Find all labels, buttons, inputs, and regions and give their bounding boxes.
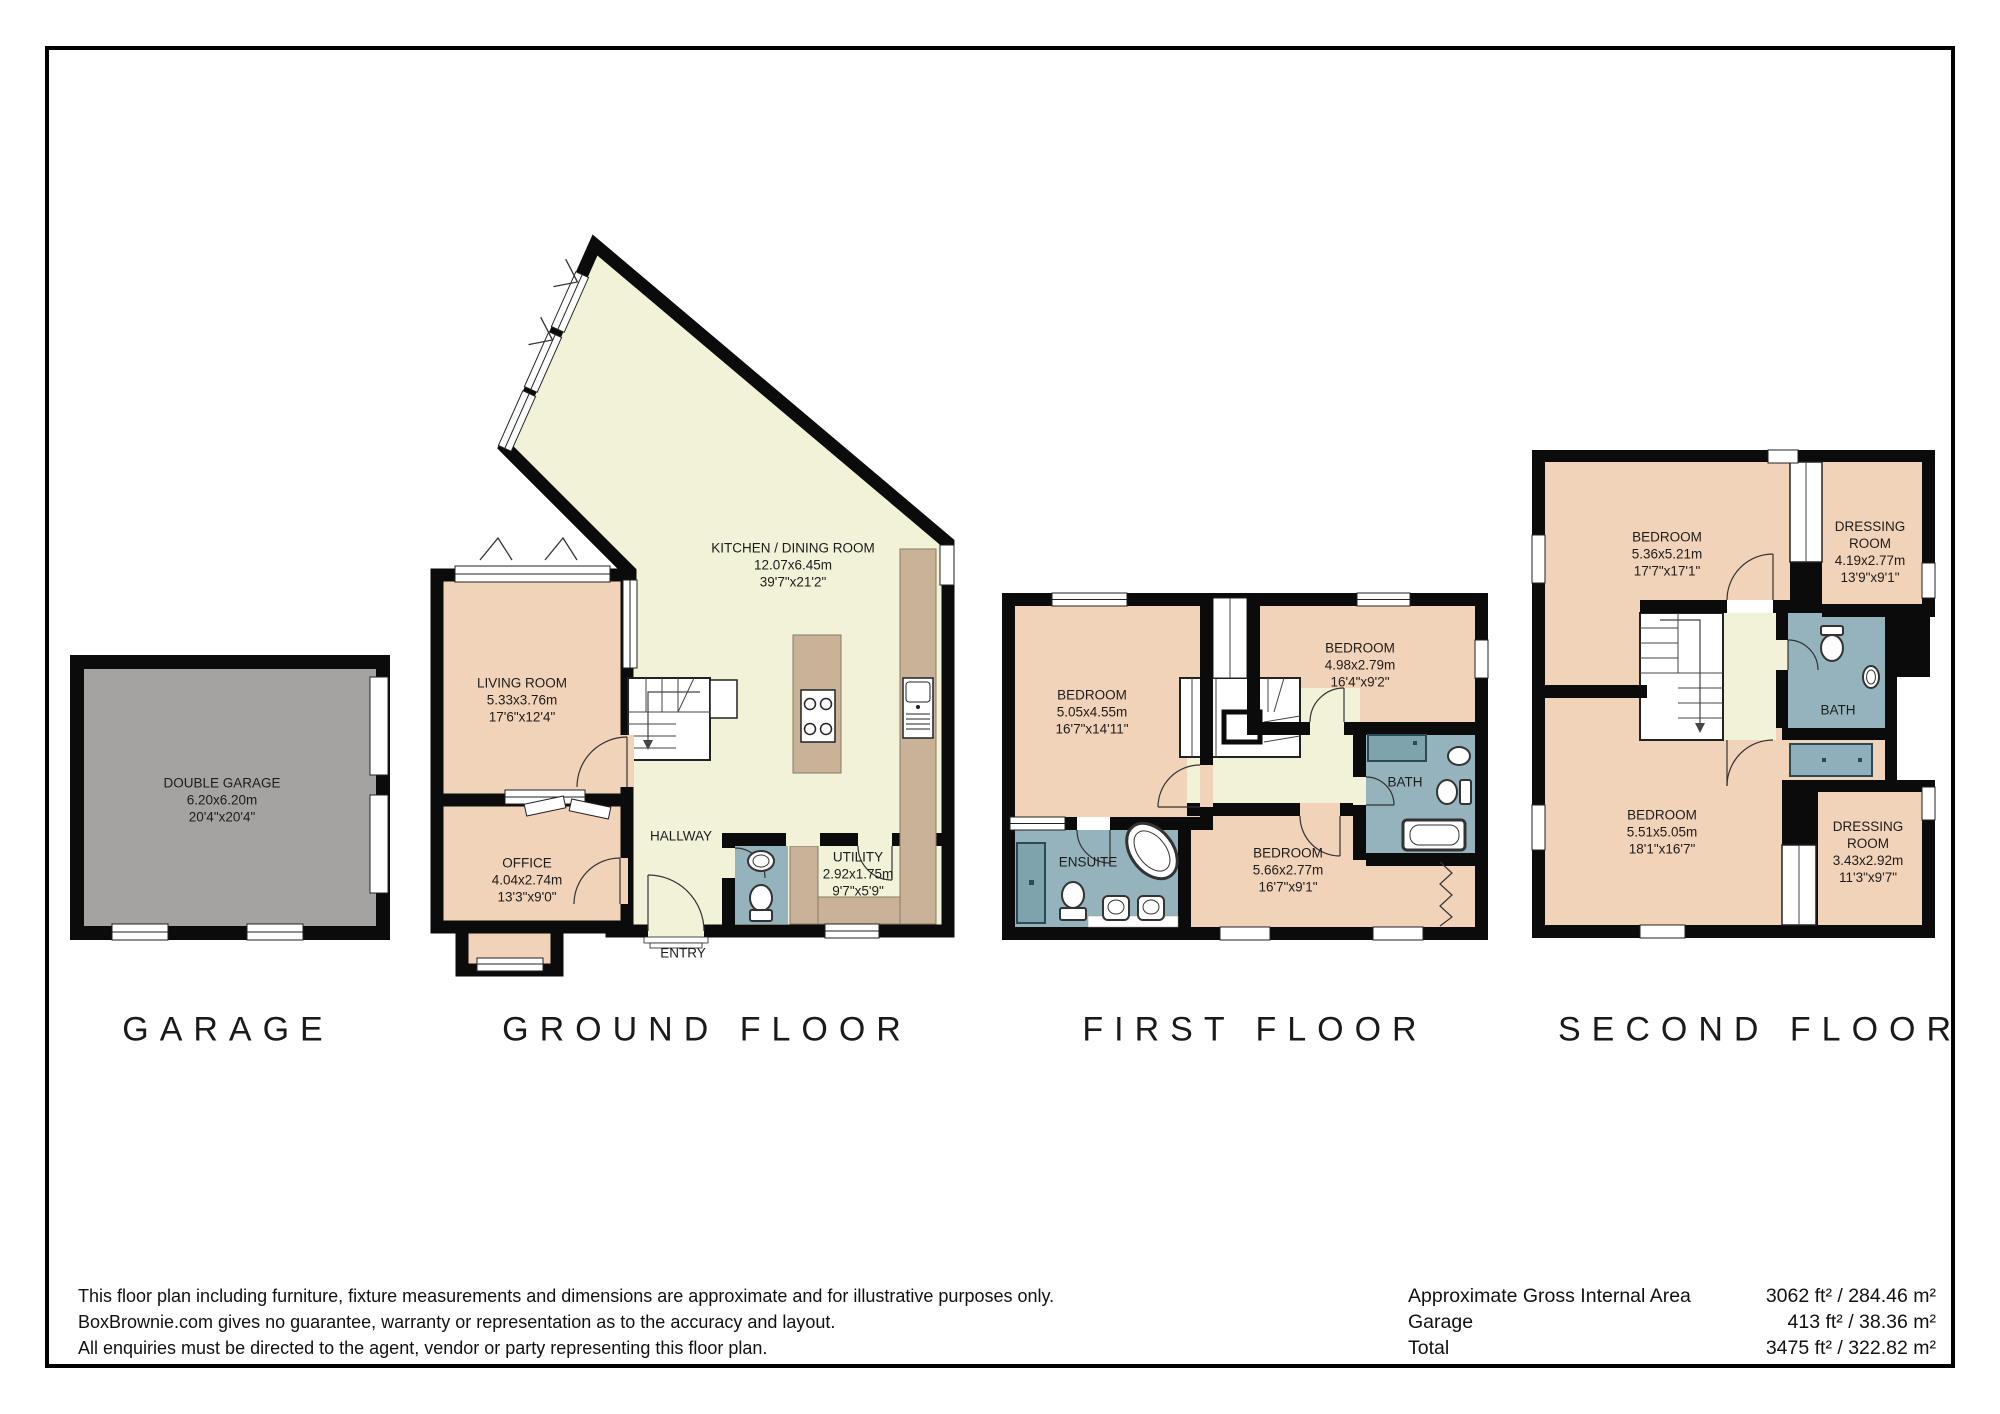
- room-label-double-garage: DOUBLE GARAGE 6.20x6.20m 20'4"x20'4": [163, 775, 280, 826]
- room-dims-metric: 2.92x1.75m: [823, 866, 894, 883]
- bathtub-icon: [1403, 820, 1465, 850]
- room-dims-imperial: 16'4"x9'2": [1325, 674, 1396, 691]
- area-row-gross: Approximate Gross Internal Area 3062 ft²…: [1408, 1283, 1936, 1309]
- room-name: BEDROOM: [1632, 529, 1703, 546]
- room-name: DOUBLE GARAGE: [163, 775, 280, 792]
- area-summary-table: Approximate Gross Internal Area 3062 ft²…: [1408, 1283, 1936, 1361]
- disclaimer-line-2: BoxBrownie.com gives no guarantee, warra…: [78, 1309, 1054, 1335]
- room-dims-imperial: 9'7"x5'9": [823, 883, 894, 900]
- room-dims-metric: 5.66x2.77m: [1253, 862, 1324, 879]
- room-name-2: ROOM: [1835, 535, 1906, 552]
- area-label: Total: [1408, 1335, 1449, 1361]
- room-dims-metric: 12.07x6.45m: [711, 557, 875, 574]
- room-label-living-room: LIVING ROOM 5.33x3.76m 17'6"x12'4": [477, 675, 567, 726]
- room-label-utility: UTILITY 2.92x1.75m 9'7"x5'9": [823, 849, 894, 900]
- room-name: KITCHEN / DINING ROOM: [711, 540, 875, 557]
- room-label-sf-bedroom-1: BEDROOM 5.36x5.21m 17'7"x17'1": [1632, 529, 1703, 580]
- disclaimer-line-3: All enquiries must be directed to the ag…: [78, 1335, 1054, 1361]
- room-name: BEDROOM: [1253, 845, 1324, 862]
- room-dims-imperial: 18'1"x16'7": [1627, 841, 1698, 858]
- room-name: ENSUITE: [1059, 854, 1118, 871]
- room-dims-imperial: 13'9"x9'1": [1835, 569, 1906, 586]
- disclaimer-text: This floor plan including furniture, fix…: [78, 1283, 1054, 1361]
- bathtub-icon: [1790, 744, 1872, 776]
- title-garage: GARAGE: [122, 1011, 333, 1050]
- title-ground-floor: GROUND FLOOR: [502, 1011, 912, 1050]
- room-name: BEDROOM: [1055, 687, 1128, 704]
- room-dims-imperial: 17'7"x17'1": [1632, 563, 1703, 580]
- room-dims-metric: 4.19x2.77m: [1835, 552, 1906, 569]
- room-dims-metric: 5.51x5.05m: [1627, 824, 1698, 841]
- room-label-sf-bedroom-2: BEDROOM 5.51x5.05m 18'1"x16'7": [1627, 807, 1698, 858]
- basin-icon: [1863, 666, 1879, 688]
- second-stairs: [1640, 613, 1723, 740]
- stove-icon: [801, 690, 835, 742]
- room-name-2: ROOM: [1833, 835, 1904, 852]
- basin-icon: [748, 851, 774, 871]
- basin-icon: [1448, 747, 1470, 765]
- room-name: HALLWAY: [650, 828, 712, 845]
- title-second-floor: SECOND FLOOR: [1558, 1011, 1962, 1050]
- first-floor-plan: [1002, 593, 1488, 940]
- room-dims-metric: 4.98x2.79m: [1325, 657, 1396, 674]
- toilet-icon: [750, 885, 772, 921]
- room-label-entry: ENTRY: [660, 945, 706, 962]
- room-name: OFFICE: [492, 855, 563, 872]
- toilet-icon: [1821, 626, 1843, 661]
- room-label-sf-dressing-2: DRESSING ROOM 3.43x2.92m 11'3"x9'7": [1833, 818, 1904, 886]
- floorplan-drawing: [0, 0, 2000, 1414]
- area-value: 3062 ft² / 284.46 m²: [1766, 1283, 1936, 1309]
- room-dims-metric: 5.33x3.76m: [477, 692, 567, 709]
- room-label-hallway: HALLWAY: [650, 828, 712, 845]
- sink-icon: [903, 678, 933, 738]
- vanity-counter: [1368, 735, 1426, 761]
- room-label-ff-bedroom-2: BEDROOM 4.98x2.79m 16'4"x9'2": [1325, 640, 1396, 691]
- kitchen-island: [793, 635, 841, 773]
- area-label: Garage: [1408, 1309, 1473, 1335]
- room-label-kitchen: KITCHEN / DINING ROOM 12.07x6.45m 39'7"x…: [711, 540, 875, 591]
- room-name: BATH: [1820, 702, 1855, 719]
- room-dims-metric: 3.43x2.92m: [1833, 852, 1904, 869]
- room-dims-metric: 4.04x2.74m: [492, 872, 563, 889]
- room-dims-metric: 6.20x6.20m: [163, 792, 280, 809]
- room-label-sf-bath: BATH: [1820, 702, 1855, 719]
- disclaimer-line-1: This floor plan including furniture, fix…: [78, 1283, 1054, 1309]
- title-first-floor: FIRST FLOOR: [1082, 1011, 1427, 1050]
- room-dims-imperial: 16'7"x14'11": [1055, 721, 1128, 738]
- area-row-total: Total 3475 ft² / 322.82 m²: [1408, 1335, 1936, 1361]
- area-label: Approximate Gross Internal Area: [1408, 1283, 1691, 1309]
- room-label-ensuite: ENSUITE: [1059, 854, 1118, 871]
- room-dims-metric: 5.05x4.55m: [1055, 704, 1128, 721]
- room-dims-imperial: 17'6"x12'4": [477, 709, 567, 726]
- kitchen-counter: [900, 549, 936, 924]
- room-name: BATH: [1387, 774, 1422, 791]
- room-dims-imperial: 13'3"x9'0": [492, 889, 563, 906]
- room-name: UTILITY: [823, 849, 894, 866]
- area-value: 413 ft² / 38.36 m²: [1788, 1309, 1937, 1335]
- room-name: BEDROOM: [1627, 807, 1698, 824]
- room-name: DRESSING: [1835, 518, 1906, 535]
- room-label-ff-bedroom-3: BEDROOM 5.66x2.77m 16'7"x9'1": [1253, 845, 1324, 896]
- room-name: DRESSING: [1833, 818, 1904, 835]
- room-dims-imperial: 20'4"x20'4": [163, 809, 280, 826]
- room-dims-metric: 5.36x5.21m: [1632, 546, 1703, 563]
- room-dims-imperial: 16'7"x9'1": [1253, 879, 1324, 896]
- room-name: BEDROOM: [1325, 640, 1396, 657]
- room-name: ENTRY: [660, 945, 706, 962]
- room-dims-imperial: 39'7"x21'2": [711, 574, 875, 591]
- room-label-ff-bath: BATH: [1387, 774, 1422, 791]
- room-dims-imperial: 11'3"x9'7": [1833, 869, 1904, 886]
- toilet-icon: [1060, 882, 1086, 920]
- floorplan-page: DOUBLE GARAGE 6.20x6.20m 20'4"x20'4" LIV…: [0, 0, 2000, 1414]
- room-name: LIVING ROOM: [477, 675, 567, 692]
- area-row-garage: Garage 413 ft² / 38.36 m²: [1408, 1309, 1936, 1335]
- room-label-office: OFFICE 4.04x2.74m 13'3"x9'0": [492, 855, 563, 906]
- area-value: 3475 ft² / 322.82 m²: [1766, 1335, 1936, 1361]
- toilet-icon: [1437, 780, 1471, 804]
- room-label-ff-bedroom-1: BEDROOM 5.05x4.55m 16'7"x14'11": [1055, 687, 1128, 738]
- room-label-sf-dressing-1: DRESSING ROOM 4.19x2.77m 13'9"x9'1": [1835, 518, 1906, 586]
